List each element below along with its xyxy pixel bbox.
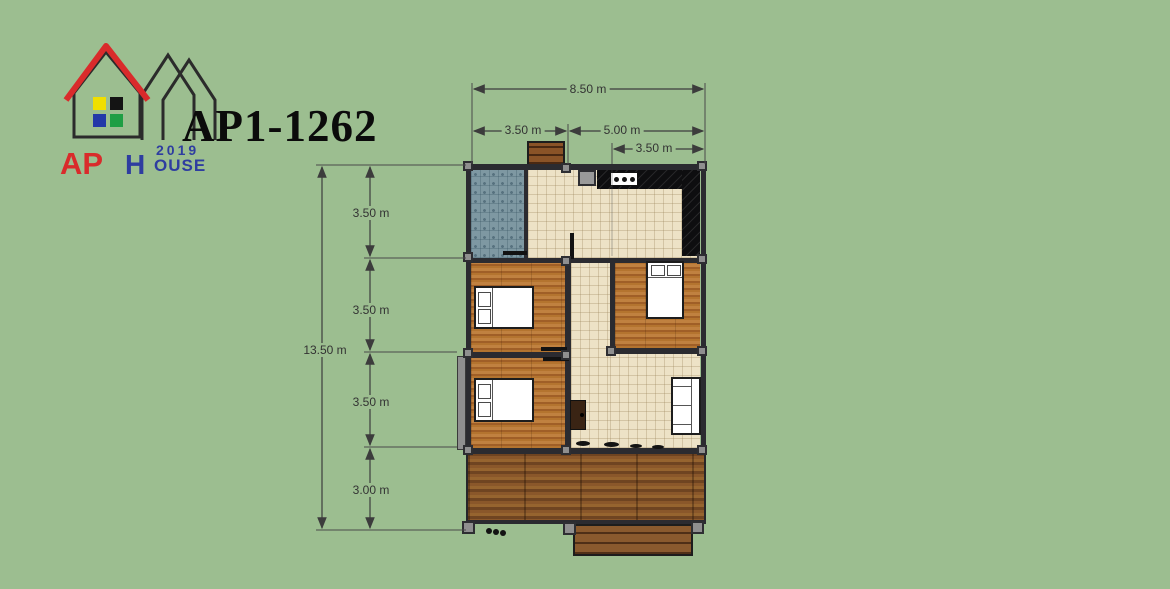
door-bathroom [503,251,527,255]
post [697,445,707,455]
tv-cabinet-icon [570,400,586,430]
shoes-icon [604,442,619,447]
post [691,521,704,534]
floorplan-page: AP H 2019 OUSE AP1-1262 [0,0,1170,589]
dim-total-width: 8.50 m [567,82,610,96]
wall-bathroom-right [524,170,528,258]
deck-finial [493,529,499,535]
post [463,161,473,171]
dim-seg-1: 3.50 m [350,206,393,220]
post [463,445,473,455]
shoes-icon [630,444,642,448]
stove-icon [610,172,638,186]
room-bathroom [471,170,524,258]
post [561,256,571,266]
dim-seg-3: 3.50 m [350,395,393,409]
post [463,252,473,262]
kitchen-counter-right [682,170,700,256]
dim-left-width: 3.50 m [502,123,545,137]
post [561,163,571,173]
deck [466,452,706,522]
post [606,346,616,356]
bed-icon-bedroom-3 [646,261,684,319]
post [463,348,473,358]
shoes-icon [652,445,664,449]
wall-bedroom3-left [610,263,615,348]
fridge-icon [578,170,596,186]
dim-seg-4: 3.00 m [350,483,393,497]
post [561,445,571,455]
bed-icon-bedroom-1 [474,286,534,329]
shoes-icon [576,441,590,446]
wall-top [466,164,706,170]
wall-bedroom3-bottom [610,348,705,354]
back-steps [527,141,565,166]
wall-left [466,164,471,454]
post [697,254,707,264]
dim-seg-2: 3.50 m [350,303,393,317]
dim-sub-right-width: 3.50 m [633,141,676,155]
deck-finial [500,530,506,536]
wall-bottom [466,448,706,454]
post [697,346,707,356]
dim-total-height: 13.50 m [300,343,349,357]
sofa-icon [671,377,701,435]
bed-icon-bedroom-2 [474,378,534,422]
front-steps [573,524,693,556]
post [697,161,707,171]
deck-finial [486,528,492,534]
wall-right [701,164,706,454]
post [561,350,571,360]
post [462,521,475,534]
window-awning [457,356,466,450]
dim-right-width: 5.00 m [601,123,644,137]
post [563,522,576,535]
